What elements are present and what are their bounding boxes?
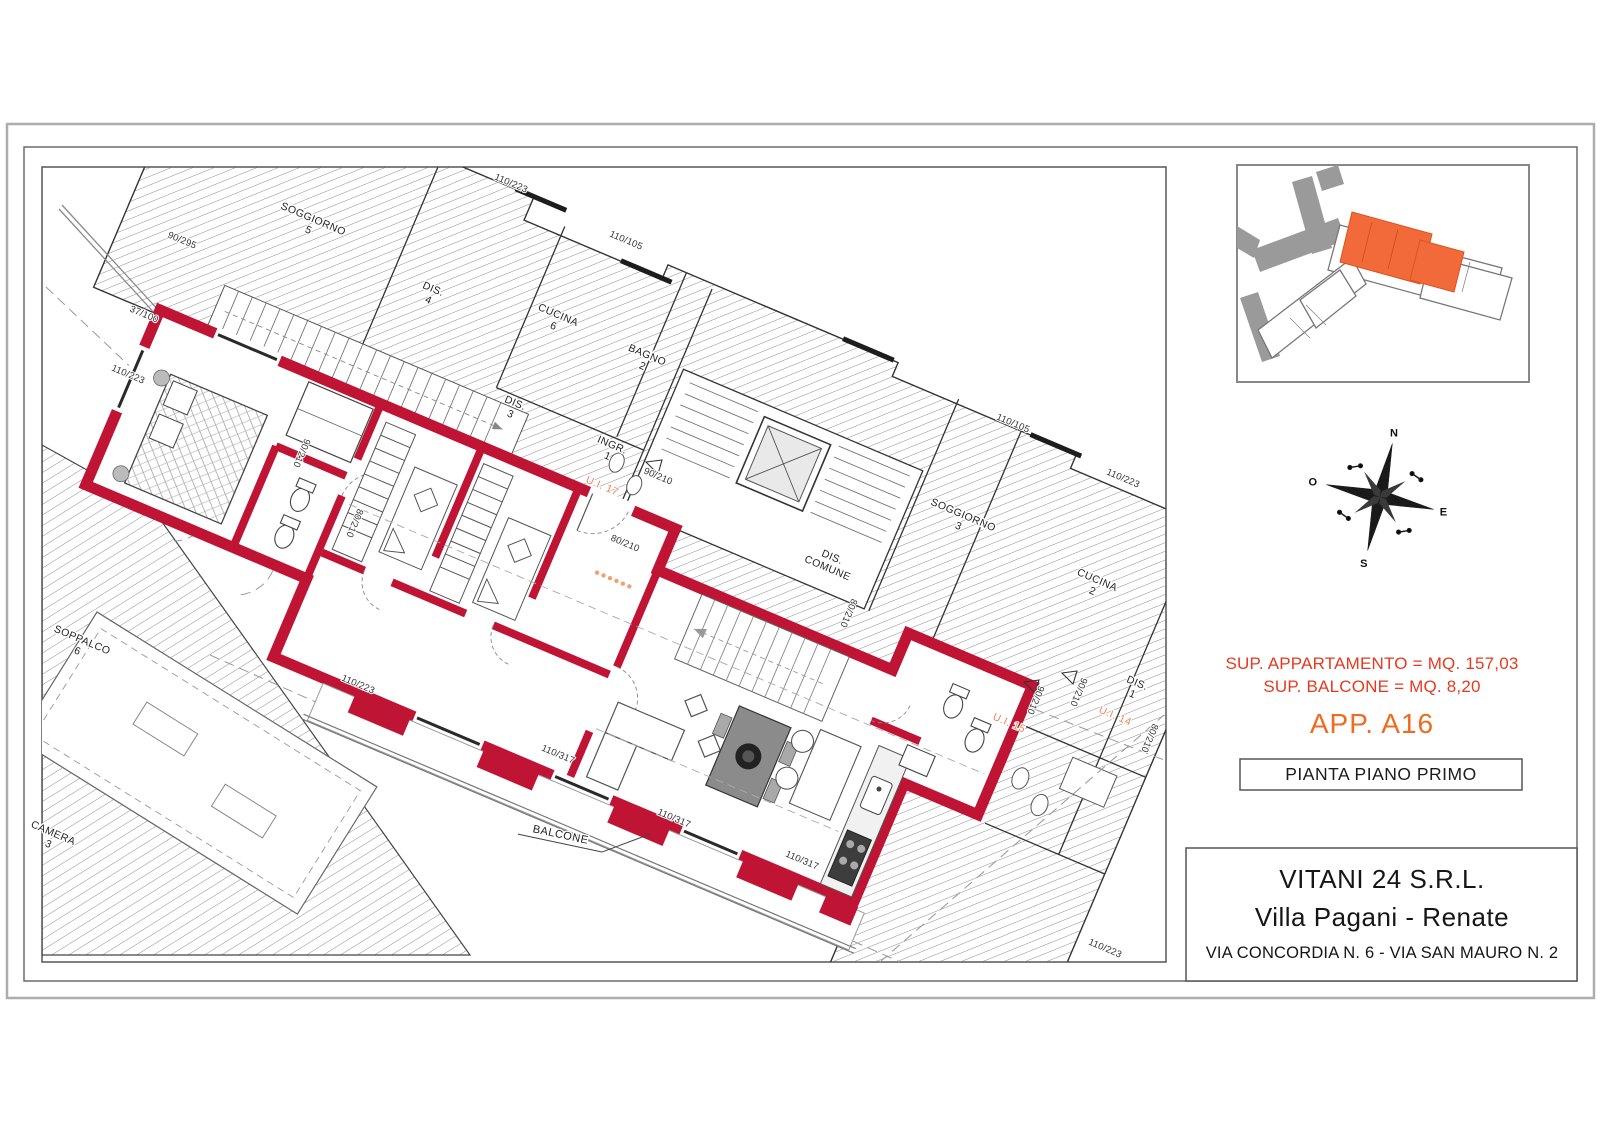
compass-east: E xyxy=(1440,507,1447,519)
drawing-sheet: SOGGIORNO5 DIS.4 CUCINA6 BAGNO2 DIS.3 IN… xyxy=(0,0,1600,1130)
project-name: Villa Pagani - Renate xyxy=(1255,902,1509,932)
project-address: VIA CONCORDIA N. 6 - VIA SAN MAURO N. 2 xyxy=(1206,944,1559,962)
key-plan xyxy=(1237,165,1529,382)
compass-north: N xyxy=(1390,428,1398,440)
apartment-code-text: APP. A16 xyxy=(1310,708,1434,739)
surface-apartment-text: SUP. APPARTAMENTO = MQ. 157,03 xyxy=(1225,654,1518,673)
drawing-title-text: PIANTA PIANO PRIMO xyxy=(1285,764,1477,784)
floor-plan-sheet: SOGGIORNO5 DIS.4 CUCINA6 BAGNO2 DIS.3 IN… xyxy=(0,0,1600,1130)
area-info: SUP. APPARTAMENTO = MQ. 157,03 SUP. BALC… xyxy=(1225,654,1518,739)
drawing-title-box: PIANTA PIANO PRIMO xyxy=(1240,759,1522,790)
compass-rose: N E S O xyxy=(1291,410,1465,586)
title-block: VITANI 24 S.R.L. Villa Pagani - Renate V… xyxy=(1186,848,1577,981)
compass-west: O xyxy=(1309,477,1318,489)
surface-balcony-text: SUP. BALCONE = MQ. 8,20 xyxy=(1263,677,1480,696)
company-name: VITANI 24 S.R.L. xyxy=(1279,864,1484,894)
compass-south: S xyxy=(1360,558,1367,570)
